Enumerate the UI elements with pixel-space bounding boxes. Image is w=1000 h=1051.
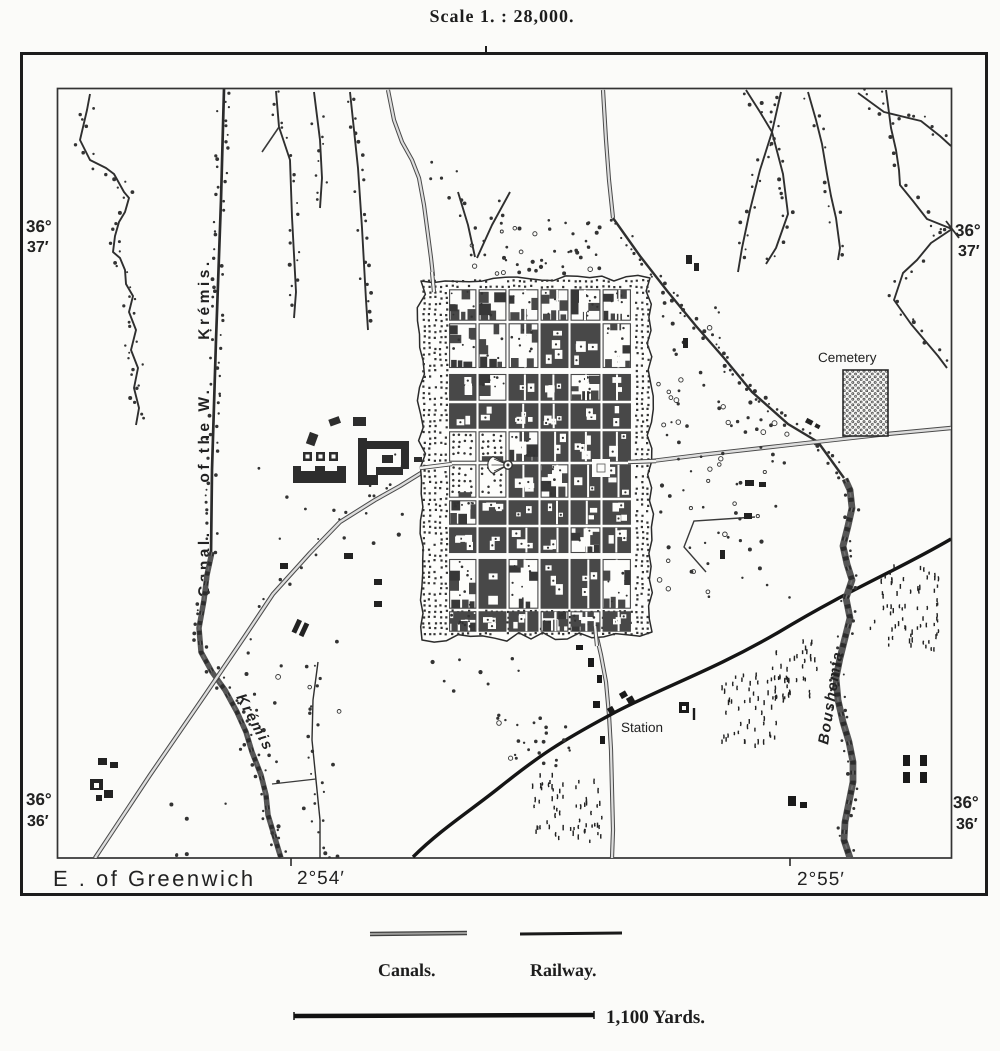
- svg-text:36′: 36′: [956, 816, 978, 833]
- svg-text:37′: 37′: [958, 243, 980, 260]
- svg-text:2°55′: 2°55′: [797, 869, 845, 890]
- svg-text:1,100 Yards.: 1,100 Yards.: [606, 1007, 705, 1028]
- svg-text:2°54′: 2°54′: [297, 868, 345, 889]
- svg-text:36′: 36′: [27, 813, 49, 830]
- svg-text:Canal. of the W. Kré: Canal. of the W. Krémis.: [196, 258, 213, 597]
- svg-text:Cemetery: Cemetery: [818, 350, 877, 365]
- svg-text:36°: 36°: [26, 217, 52, 236]
- svg-text:Station: Station: [621, 720, 663, 735]
- svg-text:Railway.: Railway.: [530, 960, 597, 980]
- svg-text:37′: 37′: [27, 239, 49, 256]
- svg-text:Canals.: Canals.: [378, 960, 436, 980]
- svg-text:36°: 36°: [26, 790, 52, 809]
- svg-text:36°: 36°: [953, 793, 979, 812]
- svg-text:E . of Greenwich: E . of Greenwich: [53, 866, 256, 891]
- svg-text:Scale 1. : 28,000.: Scale 1. : 28,000.: [430, 6, 575, 26]
